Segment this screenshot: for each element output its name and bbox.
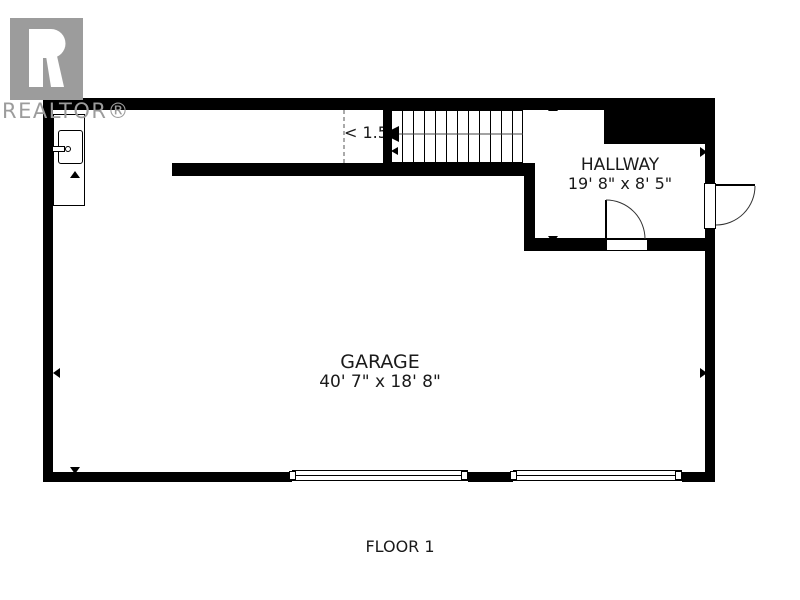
floor-plan: < 1.5 xyxy=(0,0,800,600)
hallway-door-threshold xyxy=(606,239,648,251)
window-1 xyxy=(292,470,468,481)
window-jamb xyxy=(461,471,468,480)
realtor-logo: REALTOR® xyxy=(0,0,100,106)
garage-dimensions: 40' 7" x 18' 8" xyxy=(260,372,500,392)
stair-clearance-label: < 1.5 xyxy=(344,123,384,142)
window-jamb xyxy=(510,471,517,480)
window-2 xyxy=(513,470,682,481)
wall-interior-garage xyxy=(172,163,534,176)
window-jamb xyxy=(675,471,682,480)
solid-block-top-right xyxy=(604,98,715,144)
exterior-door-swing xyxy=(716,186,755,225)
plan-symbols-layer xyxy=(0,0,800,600)
hallway-label: HALLWAY xyxy=(540,155,700,175)
wall-bottom-left xyxy=(43,472,292,482)
marker-left-garage-icon xyxy=(53,368,60,378)
wall-bottom-middle xyxy=(468,472,513,482)
staircase xyxy=(391,110,523,163)
window-jamb xyxy=(289,471,296,480)
wall-bottom-right xyxy=(682,472,715,482)
hallway-door-swing xyxy=(606,200,645,239)
realtor-logo-text: REALTOR® xyxy=(2,99,130,123)
garage-label: GARAGE xyxy=(260,351,500,373)
wall-right-lower xyxy=(705,229,715,482)
wall-left xyxy=(43,98,53,482)
appliance-handle xyxy=(52,146,65,152)
window-mullion xyxy=(293,475,467,476)
appliance-knob xyxy=(65,146,71,152)
hallway-dimensions: 19' 8" x 8' 5" xyxy=(540,174,700,193)
exterior-door-opening xyxy=(704,183,716,229)
floor-title: FLOOR 1 xyxy=(300,537,500,556)
realtor-r-icon xyxy=(0,0,100,102)
window-mullion xyxy=(514,475,681,476)
